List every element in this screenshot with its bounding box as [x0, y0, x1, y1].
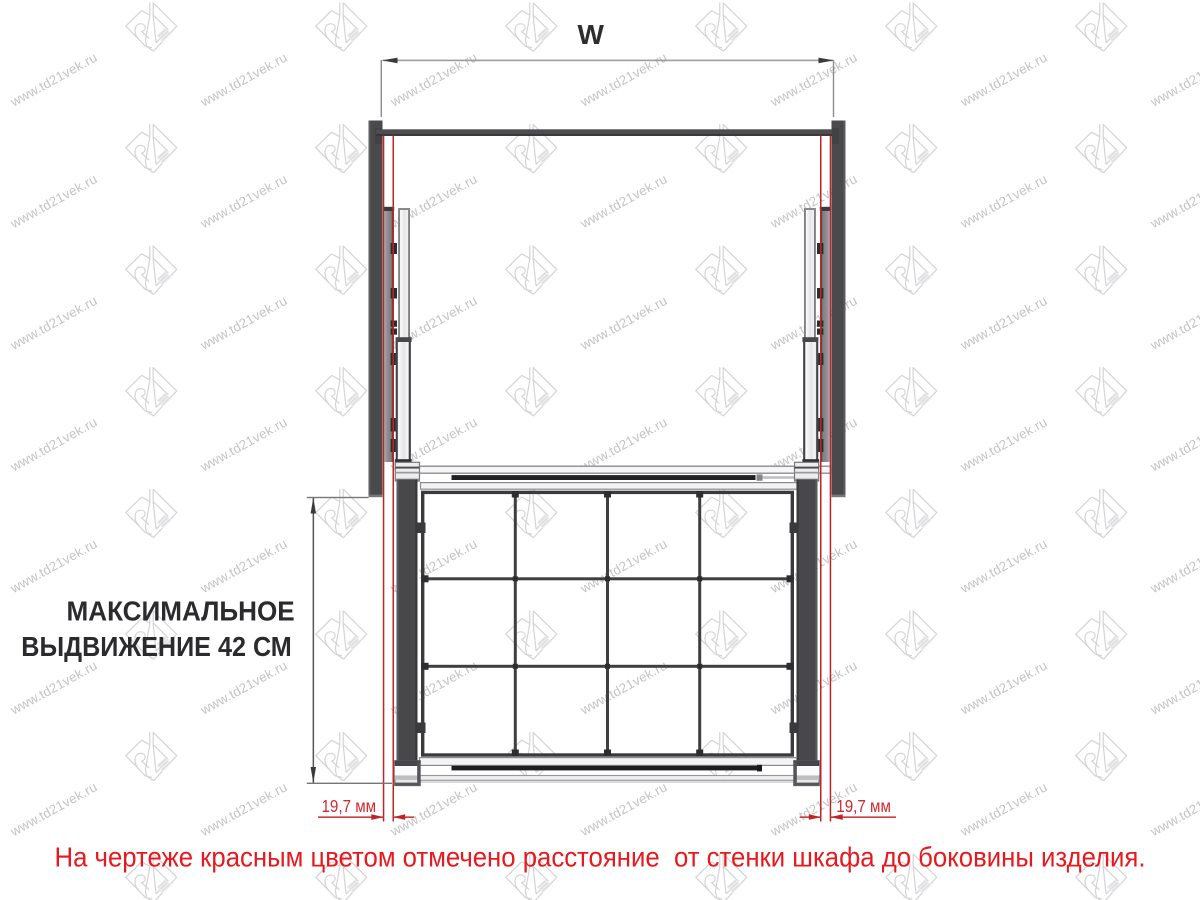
svg-text:W: W — [578, 19, 605, 50]
svg-text:19,7 мм: 19,7 мм — [322, 796, 377, 816]
svg-text:www.td21vek.ru: www.td21vek.ru — [197, 658, 290, 718]
svg-text:ВЫДВИЖЕНИЕ 42 СМ: ВЫДВИЖЕНИЕ 42 СМ — [21, 631, 292, 662]
svg-text:www.td21vek.ru: www.td21vek.ru — [7, 293, 100, 353]
svg-text:www.td21vek.ru: www.td21vek.ru — [1147, 171, 1200, 231]
svg-text:www.td21vek.ru: www.td21vek.ru — [197, 779, 290, 839]
svg-text:www.td21vek.ru: www.td21vek.ru — [197, 414, 290, 474]
svg-text:www.td21vek.ru: www.td21vek.ru — [7, 50, 100, 110]
svg-text:www.td21vek.ru: www.td21vek.ru — [7, 658, 100, 718]
svg-text:www.td21vek.ru: www.td21vek.ru — [1147, 536, 1200, 596]
svg-text:www.td21vek.ru: www.td21vek.ru — [577, 293, 670, 353]
svg-text:www.td21vek.ru: www.td21vek.ru — [7, 779, 100, 839]
svg-text:www.td21vek.ru: www.td21vek.ru — [957, 50, 1050, 110]
svg-text:www.td21vek.ru: www.td21vek.ru — [1147, 293, 1200, 353]
svg-text:www.td21vek.ru: www.td21vek.ru — [957, 414, 1050, 474]
svg-text:www.td21vek.ru: www.td21vek.ru — [577, 50, 670, 110]
svg-text:www.td21vek.ru: www.td21vek.ru — [387, 779, 480, 839]
svg-text:www.td21vek.ru: www.td21vek.ru — [197, 536, 290, 596]
svg-text:www.td21vek.ru: www.td21vek.ru — [197, 293, 290, 353]
svg-text:www.td21vek.ru: www.td21vek.ru — [577, 171, 670, 231]
svg-text:www.td21vek.ru: www.td21vek.ru — [1147, 779, 1200, 839]
svg-text:www.td21vek.ru: www.td21vek.ru — [1147, 50, 1200, 110]
svg-text:www.td21vek.ru: www.td21vek.ru — [1147, 414, 1200, 474]
svg-text:www.td21vek.ru: www.td21vek.ru — [387, 50, 480, 110]
svg-text:www.td21vek.ru: www.td21vek.ru — [7, 414, 100, 474]
svg-text:www.td21vek.ru: www.td21vek.ru — [957, 536, 1050, 596]
svg-text:www.td21vek.ru: www.td21vek.ru — [957, 171, 1050, 231]
svg-text:www.td21vek.ru: www.td21vek.ru — [577, 536, 670, 596]
svg-text:19,7 мм: 19,7 мм — [836, 796, 891, 816]
svg-text:www.td21vek.ru: www.td21vek.ru — [957, 293, 1050, 353]
svg-text:www.td21vek.ru: www.td21vek.ru — [957, 779, 1050, 839]
svg-text:www.td21vek.ru: www.td21vek.ru — [767, 50, 860, 110]
svg-text:www.td21vek.ru: www.td21vek.ru — [957, 658, 1050, 718]
svg-text:www.td21vek.ru: www.td21vek.ru — [197, 171, 290, 231]
svg-text:www.td21vek.ru: www.td21vek.ru — [7, 536, 100, 596]
svg-text:www.td21vek.ru: www.td21vek.ru — [197, 50, 290, 110]
svg-text:На чертеже красным цветом отме: На чертеже красным цветом отмечено расст… — [55, 841, 1146, 872]
svg-text:www.td21vek.ru: www.td21vek.ru — [1147, 658, 1200, 718]
svg-text:МАКСИМАЛЬНОЕ: МАКСИМАЛЬНОЕ — [67, 596, 295, 627]
svg-text:www.td21vek.ru: www.td21vek.ru — [577, 779, 670, 839]
svg-text:www.td21vek.ru: www.td21vek.ru — [7, 171, 100, 231]
